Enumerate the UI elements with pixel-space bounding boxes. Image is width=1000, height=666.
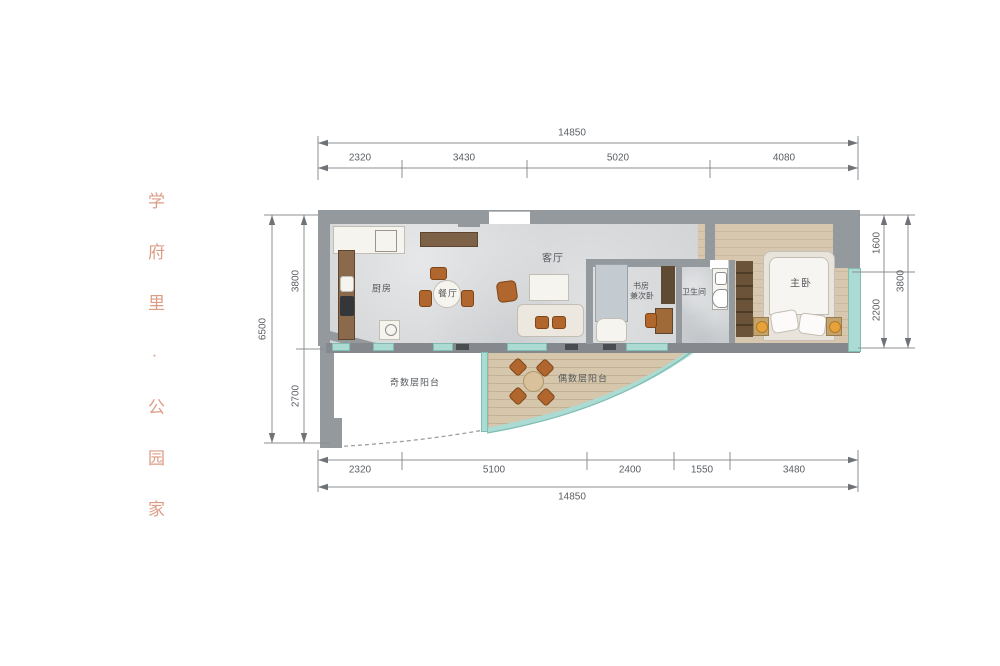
- dining-chair-top: [430, 267, 447, 280]
- dim-left-total: 6500: [258, 318, 269, 340]
- dim-top-seg-1: 3430: [453, 153, 475, 164]
- kitchen-cooktop: [340, 296, 354, 316]
- floor-plan-page: 学府里·公园家: [0, 0, 1000, 666]
- dim-left-seg-1: 2700: [291, 385, 302, 407]
- sofa-cushion-left: [535, 316, 549, 329]
- wall-left: [318, 210, 330, 346]
- study-chair: [645, 313, 657, 328]
- window-bottom-kitchen-left: [332, 343, 350, 351]
- lamp-right: [829, 321, 841, 333]
- window-right-master: [848, 268, 861, 352]
- dim-bottom-total: 14850: [558, 492, 586, 503]
- dim-top-total: 14850: [558, 128, 586, 139]
- study-bed-pillow: [596, 318, 627, 342]
- window-entry-gap: [489, 211, 530, 224]
- wall-corridor-master: [705, 224, 715, 262]
- sofa-cushion-right: [552, 316, 566, 329]
- kitchen-sink: [340, 276, 354, 292]
- dim-bottom-seg-1: 5100: [483, 465, 505, 476]
- dim-bottom-seg-3: 1550: [691, 465, 713, 476]
- dim-right-seg-0: 1600: [872, 232, 883, 254]
- fridge: [375, 230, 397, 252]
- room-label-bathroom: 卫生间: [682, 287, 706, 298]
- room-label-balcony-odd: 奇数层阳台: [390, 376, 440, 389]
- room-label-master: 主卧: [790, 275, 812, 290]
- armchair: [496, 280, 519, 304]
- wall-balcony-left-foot: [320, 418, 342, 448]
- balcony-chair-3: [508, 386, 528, 406]
- door-frame-mark-2: [565, 344, 578, 350]
- toilet: [712, 289, 728, 308]
- room-label-study-line2: 兼次卧: [630, 291, 654, 302]
- wall-bathroom-right: [729, 260, 735, 343]
- dining-sideboard: [420, 232, 478, 247]
- coffee-table: [529, 274, 569, 301]
- dim-bottom-seg-4: 3480: [783, 465, 805, 476]
- door-frame-mark-1: [456, 344, 469, 350]
- dim-top-seg-3: 4080: [773, 153, 795, 164]
- balcony-table: [523, 371, 544, 392]
- lamp-left: [756, 321, 768, 333]
- dining-chair-left: [419, 290, 432, 307]
- kitchen-counter: [338, 250, 355, 340]
- wall-top: [318, 210, 858, 224]
- study-desk: [655, 308, 673, 334]
- door-frame-mark-3: [603, 344, 616, 350]
- dim-top-seg-2: 5020: [607, 153, 629, 164]
- room-label-balcony-even: 偶数层阳台: [558, 372, 608, 385]
- window-bottom-dining: [433, 343, 453, 351]
- wall-study-right: [676, 262, 682, 343]
- bed-pillow-right: [798, 312, 828, 337]
- dim-bottom-seg-0: 2320: [349, 465, 371, 476]
- dim-right-seg-1: 2200: [872, 299, 883, 321]
- dim-right-total: 3800: [896, 270, 907, 292]
- study-cabinet: [661, 266, 675, 304]
- bathroom-sink: [715, 272, 727, 285]
- wall-top-step: [458, 210, 480, 227]
- room-label-dining: 餐厅: [438, 287, 458, 300]
- balcony-divider-glass: [481, 352, 488, 432]
- brand-vertical-text: 学府里·公园家: [142, 192, 167, 551]
- wardrobe: [736, 261, 753, 337]
- room-label-kitchen: 厨房: [372, 282, 392, 295]
- balcony-odd-dashed-edge: [330, 430, 484, 447]
- sofa: [517, 304, 584, 337]
- dim-top-seg-0: 2320: [349, 153, 371, 164]
- wall-corner-top-right: [833, 210, 860, 268]
- window-bottom-study: [626, 343, 668, 351]
- window-bottom-kitchen: [373, 343, 394, 351]
- dining-chair-right: [461, 290, 474, 307]
- window-bottom-living: [507, 343, 547, 351]
- dim-bottom-seg-2: 2400: [619, 465, 641, 476]
- room-label-living: 客厅: [542, 250, 564, 265]
- wall-bottom: [326, 343, 860, 353]
- dim-left-seg-0: 3800: [291, 270, 302, 292]
- study-bed-blanket: [595, 264, 628, 322]
- washing-machine-drum: [385, 324, 397, 336]
- wall-study-left: [586, 259, 593, 344]
